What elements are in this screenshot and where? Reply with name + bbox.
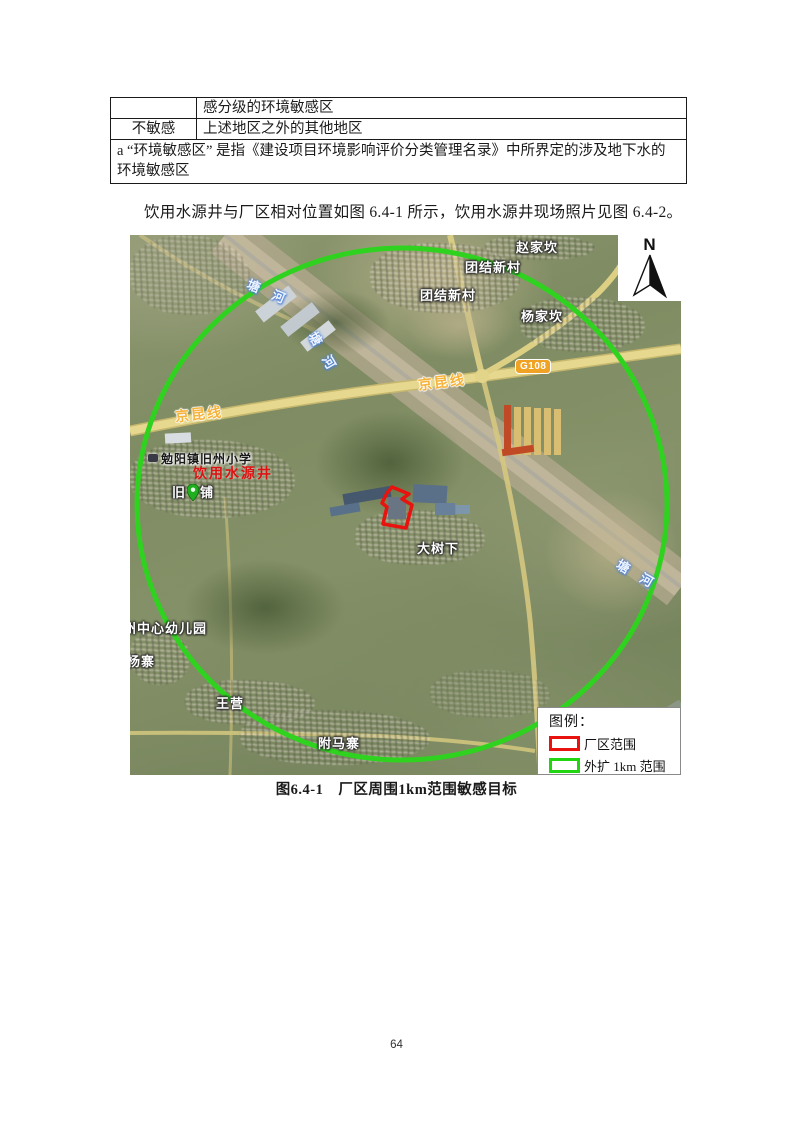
table-cell-sensitive-zone: 感分级的环境敏感区 <box>197 98 687 119</box>
jiuzhoupu-text-left: 旧 <box>172 485 186 500</box>
school-icon <box>148 454 158 462</box>
map-label-kindergarten: 州中心幼儿园 <box>130 618 207 637</box>
legend-label-plant: 厂区范围 <box>584 734 636 753</box>
sensitivity-table: 感分级的环境敏感区 不敏感 上述地区之外的其他地区 a “环境敏感区” 是指《建… <box>110 97 687 184</box>
map-label-yangjiakan: 杨家坎 <box>521 306 563 325</box>
g108-route-badge: G108 <box>515 359 551 374</box>
table-row: 感分级的环境敏感区 <box>111 98 687 119</box>
table-row: a “环境敏感区” 是指《建设项目环境影响评价分类管理名录》中所界定的涉及地下水… <box>111 140 687 184</box>
map-label-fumazhai: 附马寨 <box>318 733 360 752</box>
buffer-1km-circle <box>137 248 667 760</box>
table-footnote: a “环境敏感区” 是指《建设项目环境影响评价分类管理名录》中所界定的涉及地下水… <box>111 140 687 184</box>
body-paragraph: 饮用水源井与厂区相对位置如图 6.4-1 所示，饮用水源井现场照片见图 6.4-… <box>110 200 689 225</box>
legend-title: 图例： <box>549 711 680 731</box>
map-label-dashuxia: 大树下 <box>417 538 459 557</box>
map-label-tuanjiexincun-2: 团结新村 <box>420 285 476 304</box>
table-cell-empty <box>111 98 197 119</box>
map-label-jiuzhoupu: 旧铺 <box>172 482 214 504</box>
map-label-yangzhai: 杨寨 <box>130 651 155 670</box>
legend-swatch-buffer <box>549 758 580 773</box>
map-label-drinking-well: 饮用水源井 <box>193 463 273 483</box>
map-label-wangying: 王营 <box>216 693 244 712</box>
legend-swatch-plant <box>549 736 580 751</box>
table-cell-not-sensitive: 不敏感 <box>111 119 197 140</box>
page-number: 64 <box>0 1039 793 1051</box>
legend-label-buffer: 外扩 1km 范围 <box>584 756 666 775</box>
document-page: 感分级的环境敏感区 不敏感 上述地区之外的其他地区 a “环境敏感区” 是指《建… <box>0 0 793 1122</box>
map-label-zhaojiakan: 赵家坎 <box>516 237 558 256</box>
table-row: 不敏感 上述地区之外的其他地区 <box>111 119 687 140</box>
map-legend: 图例： 厂区范围 外扩 1km 范围 <box>537 707 681 775</box>
map-pin-icon <box>187 484 199 504</box>
figure-caption: 图6.4-1 厂区周围1km范围敏感目标 <box>0 778 793 799</box>
map-overlay <box>130 235 681 775</box>
jiuzhoupu-text-right: 铺 <box>200 485 214 500</box>
plant-boundary-polygon <box>382 487 412 528</box>
map-label-tuanjiexincun-1: 团结新村 <box>465 257 521 276</box>
north-arrow: N <box>618 235 681 301</box>
legend-item-plant: 厂区范围 <box>549 734 680 753</box>
north-letter: N <box>643 236 655 253</box>
satellite-map: 塘河 塘河 塘河 赵家坎 团结新村 团结新村 杨家坎 G108 京昆线 京昆线 … <box>130 235 681 775</box>
table-cell-other-areas: 上述地区之外的其他地区 <box>197 119 687 140</box>
north-needle-icon <box>628 253 672 299</box>
legend-item-buffer: 外扩 1km 范围 <box>549 756 680 775</box>
